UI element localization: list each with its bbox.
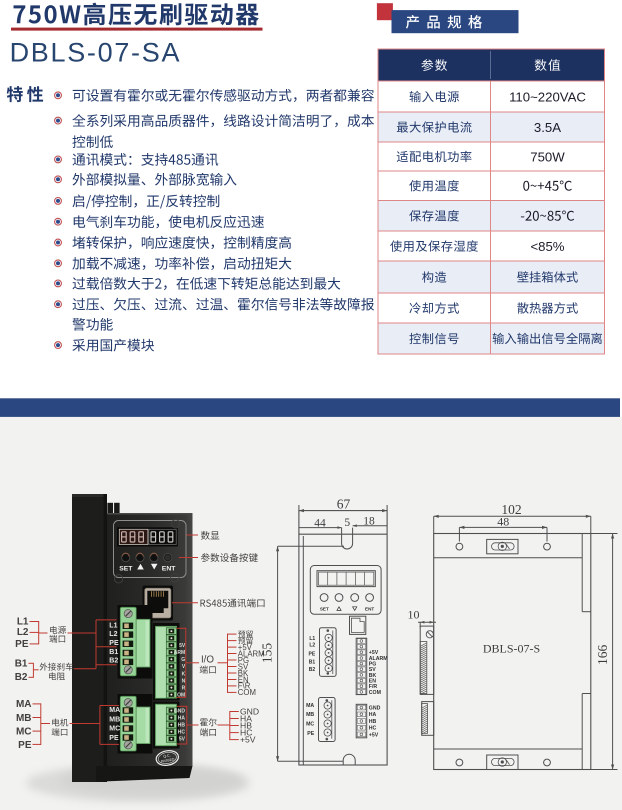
svg-text:K: K [182,671,186,677]
svg-text:110~220VAC: 110~220VAC [509,89,586,104]
svg-text:L1: L1 [309,636,315,642]
svg-text:+5V: +5V [240,735,256,745]
svg-text:R: R [182,685,186,691]
svg-text:HB: HB [369,719,377,725]
svg-text:67: 67 [337,496,351,511]
svg-text:166: 166 [595,645,610,666]
svg-text:PE: PE [18,740,32,751]
svg-text:GND: GND [369,706,381,712]
svg-text:5V: 5V [179,737,186,743]
svg-text:ARM: ARM [174,650,185,656]
svg-text:L1: L1 [109,622,117,629]
svg-text:48: 48 [497,515,509,529]
svg-text:COM: COM [369,690,381,696]
svg-text:SET: SET [320,607,329,612]
svg-text:B2: B2 [15,672,28,683]
svg-text:PE: PE [309,651,316,657]
svg-text:MA: MA [109,707,120,714]
svg-text:10: 10 [408,607,420,621]
svg-text:HA: HA [178,715,186,721]
svg-text:PE: PE [109,640,119,647]
svg-text:PE: PE [15,639,29,650]
svg-text:B1: B1 [109,649,118,656]
svg-text:MC: MC [306,722,314,728]
svg-text:B2: B2 [309,667,316,673]
svg-text:PE: PE [109,735,119,742]
svg-text:N: N [182,678,186,684]
svg-text:<85%: <85% [530,239,564,254]
svg-text:HC: HC [369,726,377,732]
svg-text:MB: MB [109,716,120,723]
svg-text:+5V: +5V [369,732,379,738]
svg-text:DBLS-07-SA: DBLS-07-SA [10,37,182,67]
svg-text:B2: B2 [109,658,118,665]
svg-text:5V: 5V [179,643,186,649]
svg-text:MB: MB [306,712,314,718]
svg-text:MC: MC [16,726,32,737]
svg-text:B1: B1 [15,658,28,669]
svg-text:ENT: ENT [365,607,374,612]
svg-text:MA: MA [16,699,32,710]
svg-text:5: 5 [344,517,350,529]
svg-text:750W: 750W [530,149,565,164]
svg-text:L2: L2 [309,643,315,649]
svg-text:L2: L2 [17,627,29,638]
svg-text:MA: MA [306,703,314,709]
svg-text:HB: HB [178,723,186,729]
svg-text:L1: L1 [17,616,29,627]
svg-text:DBLS-07-S: DBLS-07-S [483,642,540,656]
svg-text:HC: HC [178,730,186,736]
svg-text:I/O: I/O [201,654,214,665]
svg-text:ENT: ENT [162,566,176,573]
svg-text:PE: PE [307,731,314,737]
svg-text:L2: L2 [109,631,117,638]
svg-text:G: G [181,657,185,663]
svg-text:155: 155 [259,643,274,664]
svg-text:MC: MC [109,726,120,733]
svg-text:HA: HA [369,712,377,718]
svg-text:GND: GND [174,708,186,714]
svg-text:SET: SET [119,566,133,573]
svg-text:COM: COM [238,688,256,697]
svg-text:MB: MB [16,713,32,724]
svg-text:B1: B1 [309,660,316,666]
svg-text:3.5A: 3.5A [534,120,561,135]
